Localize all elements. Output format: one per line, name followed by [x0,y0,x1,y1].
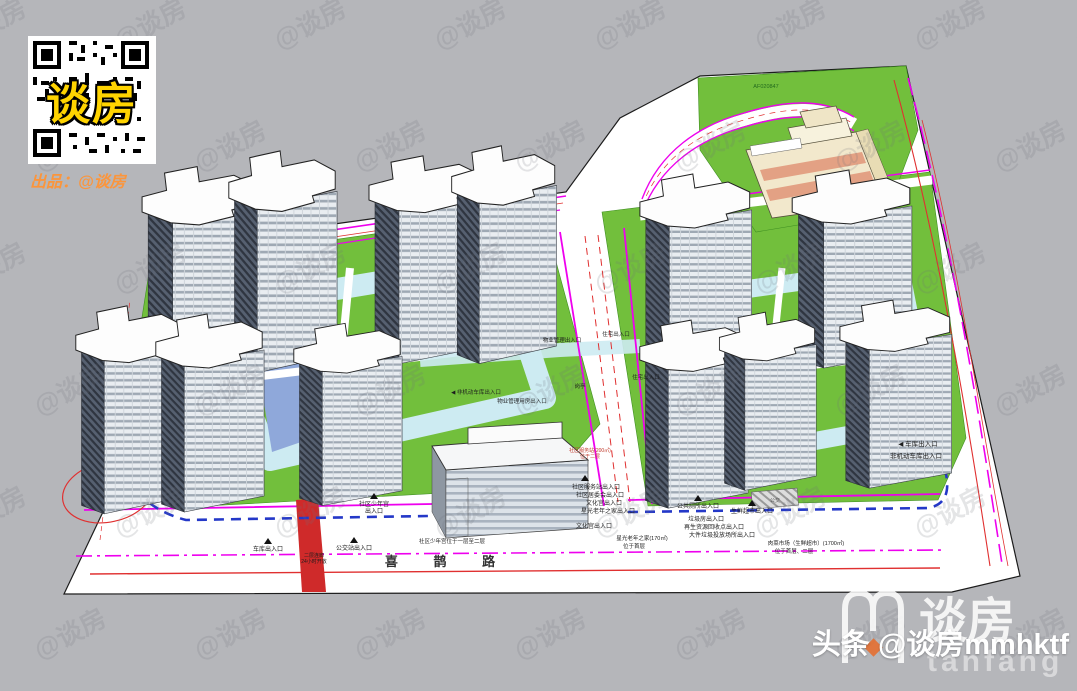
plan-label: 社区服务站(200㎡) [569,447,611,454]
brand-footer: 谈房 tanfang 头条 @谈房mmhktf [831,579,1071,683]
tower [294,323,402,505]
plan-label: 24小时开放 [301,558,327,565]
plan-label: 非机动车库出入口 [890,451,942,460]
tower [719,312,816,490]
qr-code: 谈房 [28,36,156,164]
plan-label: 社区服务站出入口 [572,483,620,491]
plan-label: 住宅出入口 [632,373,660,381]
road-name-label: 喜 鹊 路 [385,554,511,569]
plan-label: 公共厕所出入口 [677,502,719,510]
producer-credit: 出品：@谈房 [30,168,126,192]
qr-brand-text: 谈房 [28,36,156,164]
plan-label: ◀ 车库出入口 [898,439,937,448]
plan-label: 星光老年之家(170㎡) [616,534,668,542]
plan-label: 住宅出入口 [602,330,630,338]
plan-label: 公交站出入口 [336,544,372,552]
plan-label: 垃圾房出入口 [688,515,724,523]
plan-label: 再生资源回收点出入口 [684,523,744,531]
plan-label: 二层连廊 [304,552,324,559]
plan-label: ◀ 非机动车库出入口 [451,388,501,396]
screenshot-canvas: 车库出入口 二层连廊 24小时开放 公交站出入口 社区少年宫 出入口 社区少年宫… [0,0,1077,691]
plan-label: 车库出入口 [253,545,283,553]
plan-label: 位于首层、二层 [775,547,814,555]
plan-label: 位于首层 [623,542,646,550]
plan-label: 肉菜市场（生鲜超市）(1700㎡) [768,539,845,547]
parcel-code-label: AF020847 [753,84,778,90]
plan-label: 位于二层 [580,453,600,460]
footer-handle: 头条 @谈房mmhktf [812,621,1069,663]
plan-label: 社区少年宫 [359,500,389,508]
plan-label: 大件垃圾投放场所出入口 [689,531,755,539]
plan-label: 社区居委会出入口 [576,491,624,499]
plan-label: 出入口 [365,507,383,515]
plan-label: 物业管理出入口 [543,336,582,344]
